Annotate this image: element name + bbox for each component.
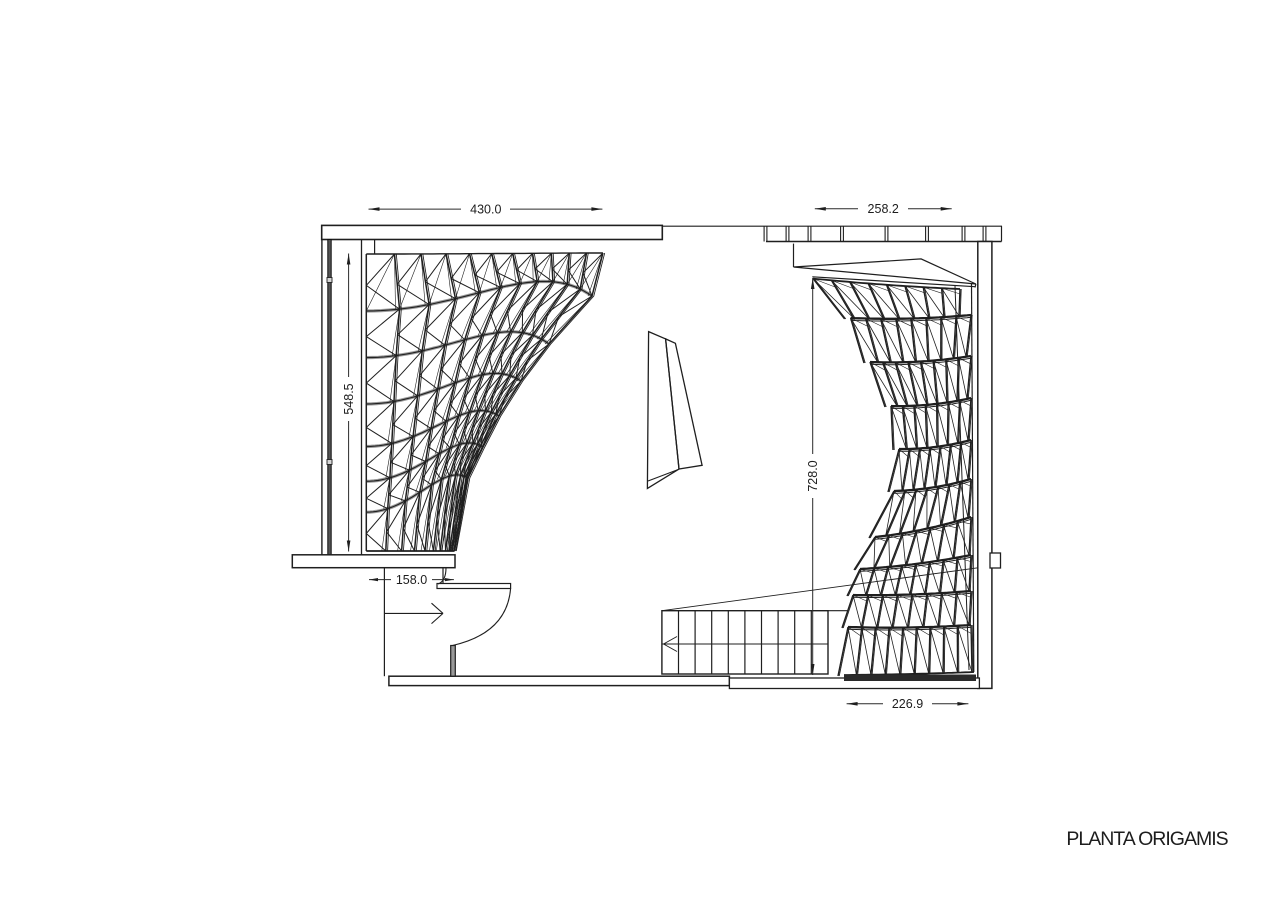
svg-text:158.0: 158.0 [396, 573, 427, 587]
svg-text:226.9: 226.9 [892, 697, 923, 711]
svg-text:258.2: 258.2 [868, 202, 899, 216]
svg-text:548.5: 548.5 [342, 383, 356, 414]
svg-text:430.0: 430.0 [470, 202, 501, 216]
svg-text:728.0: 728.0 [806, 460, 820, 491]
svg-text:PLANTA ORIGAMIS: PLANTA ORIGAMIS [1066, 828, 1228, 850]
